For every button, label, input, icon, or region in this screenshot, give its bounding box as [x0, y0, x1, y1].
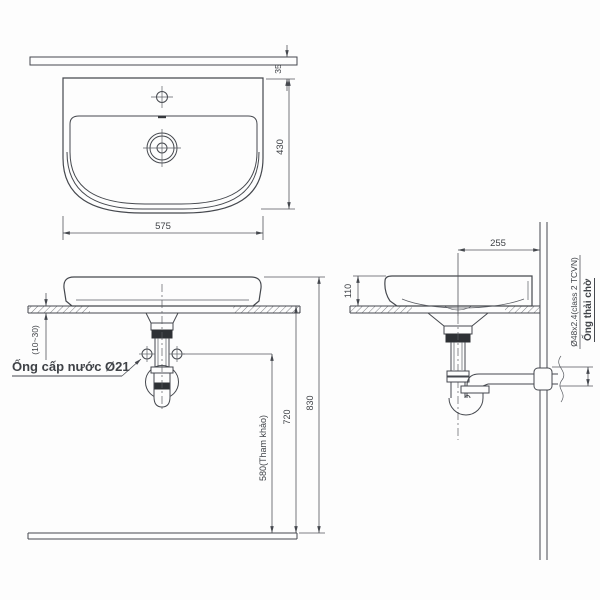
dim-drain-to-wall-label: 255	[490, 238, 506, 249]
dim-waste-stub	[552, 367, 593, 386]
dim-rim-830: 830	[264, 277, 325, 533]
dim-supply-label: 580(Tham khảo)	[258, 415, 268, 481]
dim-basin-height-110: 110	[343, 276, 386, 306]
waste-spec-label: Ø48x2.4(class 2 TCVN)	[569, 255, 580, 349]
front-sink-profile	[64, 277, 261, 306]
dim-counter-thickness-label: (10~30)	[30, 325, 40, 355]
dim-basin-height-label: 110	[343, 284, 353, 298]
wall-sleeve	[534, 368, 552, 390]
front-drain-assembly	[146, 284, 179, 412]
side-sink-profile	[385, 276, 532, 306]
top-view: 575 430 35	[30, 45, 297, 240]
dim-counter-720: 720	[282, 306, 296, 533]
waste-pipe-text: Ống thải chờ	[580, 278, 594, 341]
side-view: Ø48x2.4(class 2 TCVN) Ống thải chờ 255 1…	[343, 222, 595, 560]
dim-ledge-35: 35	[273, 45, 287, 91]
water-supply-text: Ống cấp nước Ø21	[12, 359, 130, 374]
dim-supply-580: 580(Tham khảo)	[258, 354, 272, 533]
water-supply-label: Ống cấp nước Ø21	[12, 359, 141, 376]
top-view-rim-inner-curve	[67, 152, 259, 209]
trap-union-nut	[461, 386, 489, 393]
floor-line	[28, 533, 297, 539]
wall-line	[540, 222, 547, 560]
dim-ledge-label: 35	[273, 64, 283, 74]
waste-pipe-label: Ống thải chờ	[580, 278, 595, 342]
dim-counter-label: 720	[282, 409, 292, 424]
waste-spec-text: Ø48x2.4(class 2 TCVN)	[569, 257, 579, 347]
side-drain-assembly	[428, 313, 564, 440]
washbasin-technical-drawing: 575 430 35	[0, 0, 600, 600]
trap-outer-bend	[449, 398, 483, 415]
front-view: Ống cấp nước Ø21 580(Tham khảo) 720 830	[12, 277, 325, 539]
dim-width-575: 575	[63, 216, 263, 240]
dim-rim-label: 830	[305, 395, 315, 410]
faucet-hole	[151, 86, 173, 108]
front-counter	[28, 306, 300, 313]
pipe-break-symbol	[559, 356, 564, 402]
top-view-back-ledge	[30, 57, 297, 65]
dim-width-label: 575	[155, 221, 171, 232]
drain-hole	[143, 129, 181, 167]
side-counter	[350, 306, 540, 313]
dim-drain-to-wall-255: 255	[458, 238, 540, 316]
top-view-sink-outline	[63, 78, 263, 213]
dim-depth-430: 430	[261, 79, 295, 209]
dim-counter-thickness: (10~30)	[30, 293, 46, 360]
dim-depth-label: 430	[275, 139, 286, 155]
